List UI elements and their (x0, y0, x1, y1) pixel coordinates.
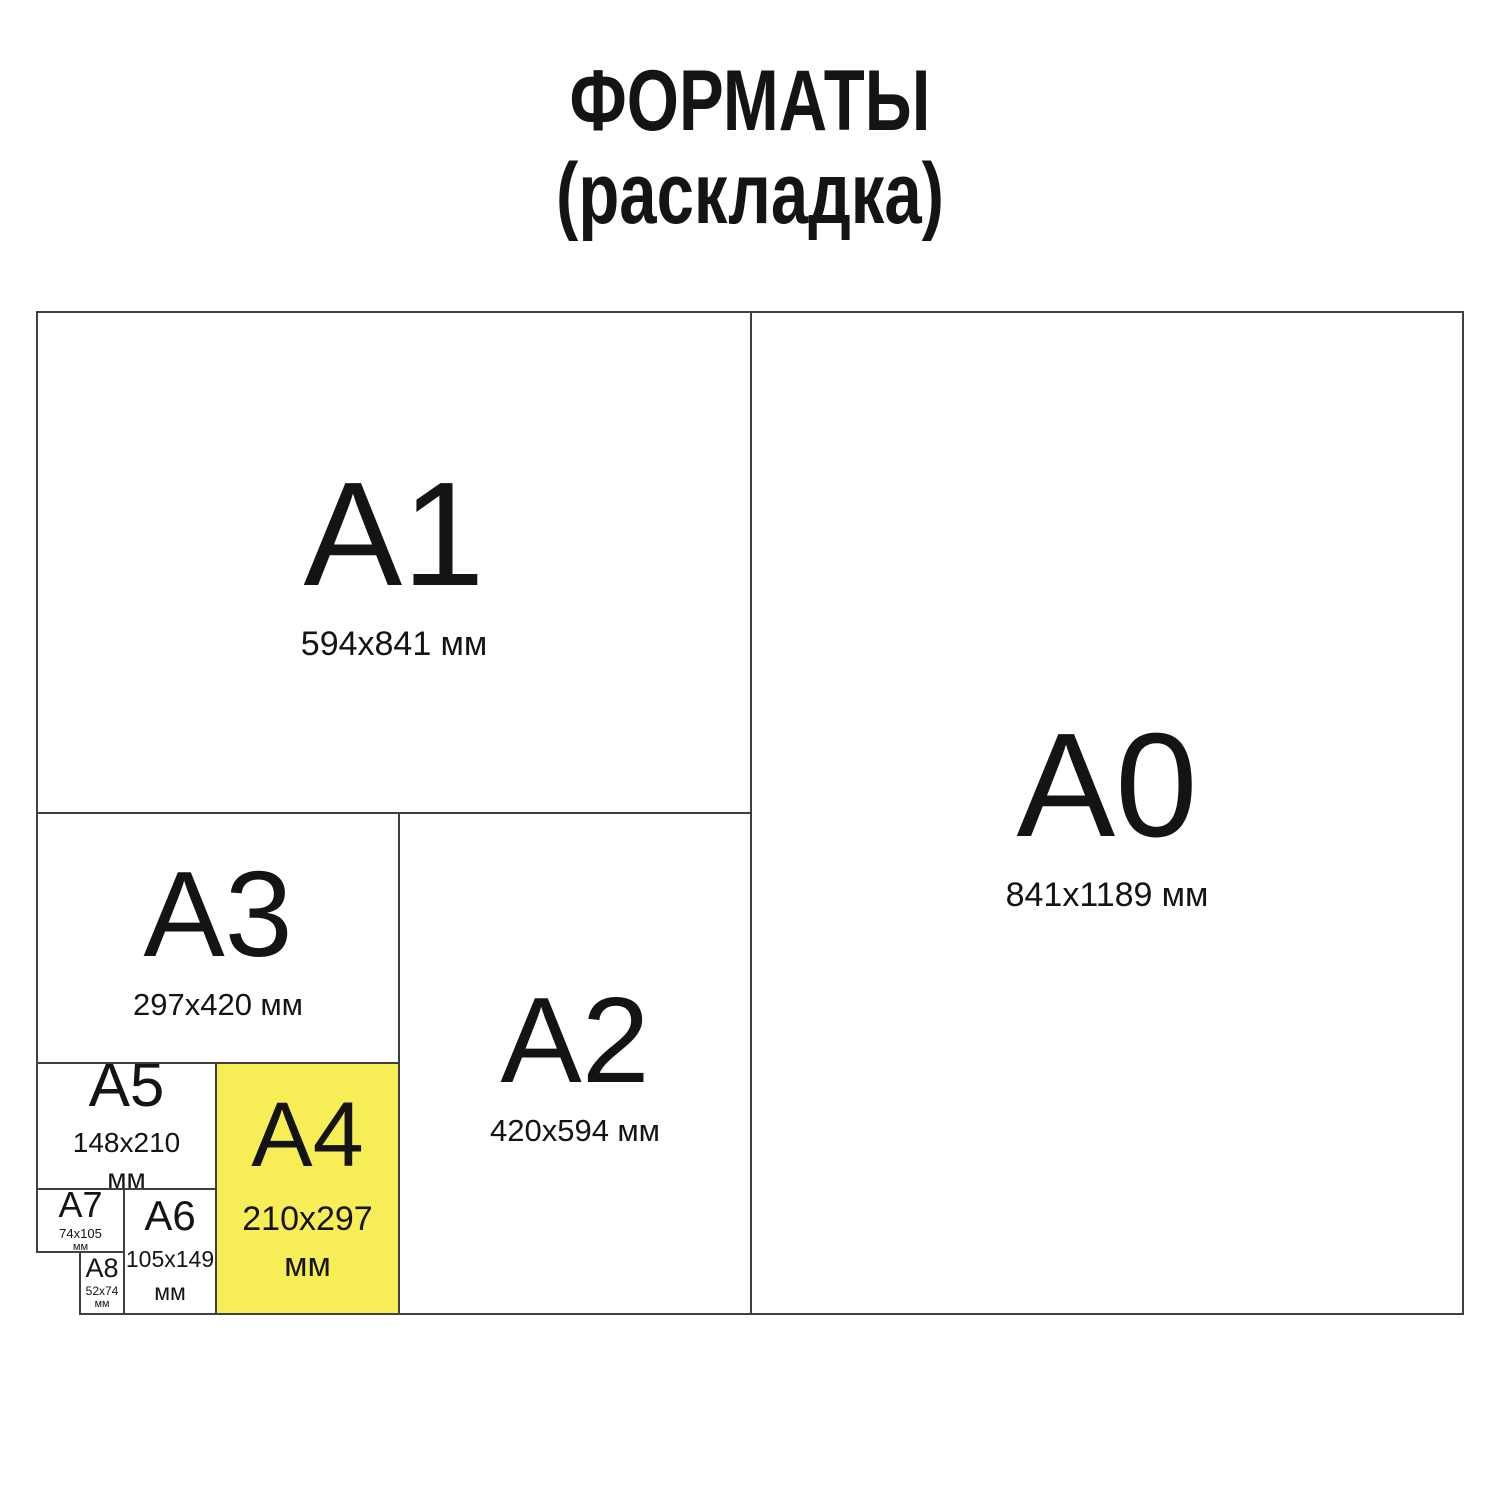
a1-bottom-border (36, 812, 752, 814)
a1-a0-divider (750, 311, 752, 1315)
format-a1-label: A1 (303, 461, 484, 609)
outer-right-border (1462, 311, 1464, 1315)
format-a4-dimensions: 210x297 (242, 1197, 372, 1243)
format-a3-size: 297x420мм (133, 987, 303, 1023)
a3-bottom-border (36, 1062, 400, 1064)
page-title: ФОРМАТЫ (раскладка) (165, 55, 1335, 241)
format-a3-unit: мм (260, 987, 303, 1022)
format-a2-label: A2 (500, 979, 649, 1101)
format-a2-unit: мм (617, 1113, 660, 1148)
format-a2-size: 420x594мм (490, 1113, 660, 1149)
format-a0-size: 841x1189мм (1006, 876, 1209, 915)
format-a6-label: A6 (144, 1195, 195, 1237)
paper-format-layout-diagram: A1 594x841мм A0 841x1189мм A3 297x420мм … (37, 312, 1463, 1314)
format-a1-size: 594x841мм (301, 625, 487, 664)
format-a7-label: A7 (58, 1187, 102, 1223)
format-box-a3: A3 297x420мм (37, 813, 399, 1063)
title-line-1: ФОРМАТЫ (165, 55, 1335, 148)
format-a1-dimensions: 594x841 (301, 625, 431, 663)
format-box-a8: A8 52x74мм (80, 1252, 124, 1314)
a7-a6-divider (123, 1188, 125, 1315)
format-a3-label: A3 (143, 853, 292, 975)
format-a8-label: A8 (85, 1255, 118, 1282)
format-box-a4-highlighted: A4 210x297мм (216, 1063, 399, 1314)
format-a2-dimensions: 420x594 (490, 1113, 609, 1148)
a3-a2-divider (398, 812, 400, 1315)
format-a6-size: 105x149мм (126, 1243, 214, 1307)
format-a4-label: A4 (251, 1089, 364, 1181)
format-a1-unit: мм (440, 625, 487, 663)
format-box-a1: A1 594x841мм (37, 312, 751, 813)
format-a8-unit: мм (86, 1298, 119, 1311)
title-line-2: (раскладка) (165, 148, 1335, 241)
format-a7-dimensions: 74x105 (59, 1226, 102, 1242)
format-box-a7: A7 74x105мм (37, 1189, 124, 1252)
format-box-a2: A2 420x594мм (399, 813, 751, 1314)
format-box-a0: A0 841x1189мм (751, 312, 1463, 1314)
format-a0-dimensions: 841x1189 (1006, 876, 1153, 914)
outer-left-border (36, 311, 38, 1253)
format-a6-unit: мм (126, 1276, 214, 1308)
format-a0-label: A0 (1016, 712, 1197, 860)
a5-a4-divider (215, 1062, 217, 1315)
format-a0-unit: мм (1162, 876, 1209, 914)
format-a3-dimensions: 297x420 (133, 987, 252, 1022)
format-a4-unit: мм (242, 1243, 372, 1289)
format-a5-dimensions: 148x210 (73, 1125, 180, 1161)
a8-left-border (79, 1251, 81, 1315)
format-a6-dimensions: 105x149 (126, 1243, 214, 1275)
format-a8-dimensions: 52x74 (86, 1284, 119, 1298)
format-a8-size: 52x74мм (86, 1284, 119, 1311)
a5-bottom-border (36, 1188, 217, 1190)
format-a4-size: 210x297мм (242, 1197, 372, 1289)
format-box-a6: A6 105x149мм (124, 1189, 216, 1314)
format-box-a5: A5 148x210мм (37, 1063, 216, 1189)
outer-bottom-border (79, 1313, 1464, 1315)
